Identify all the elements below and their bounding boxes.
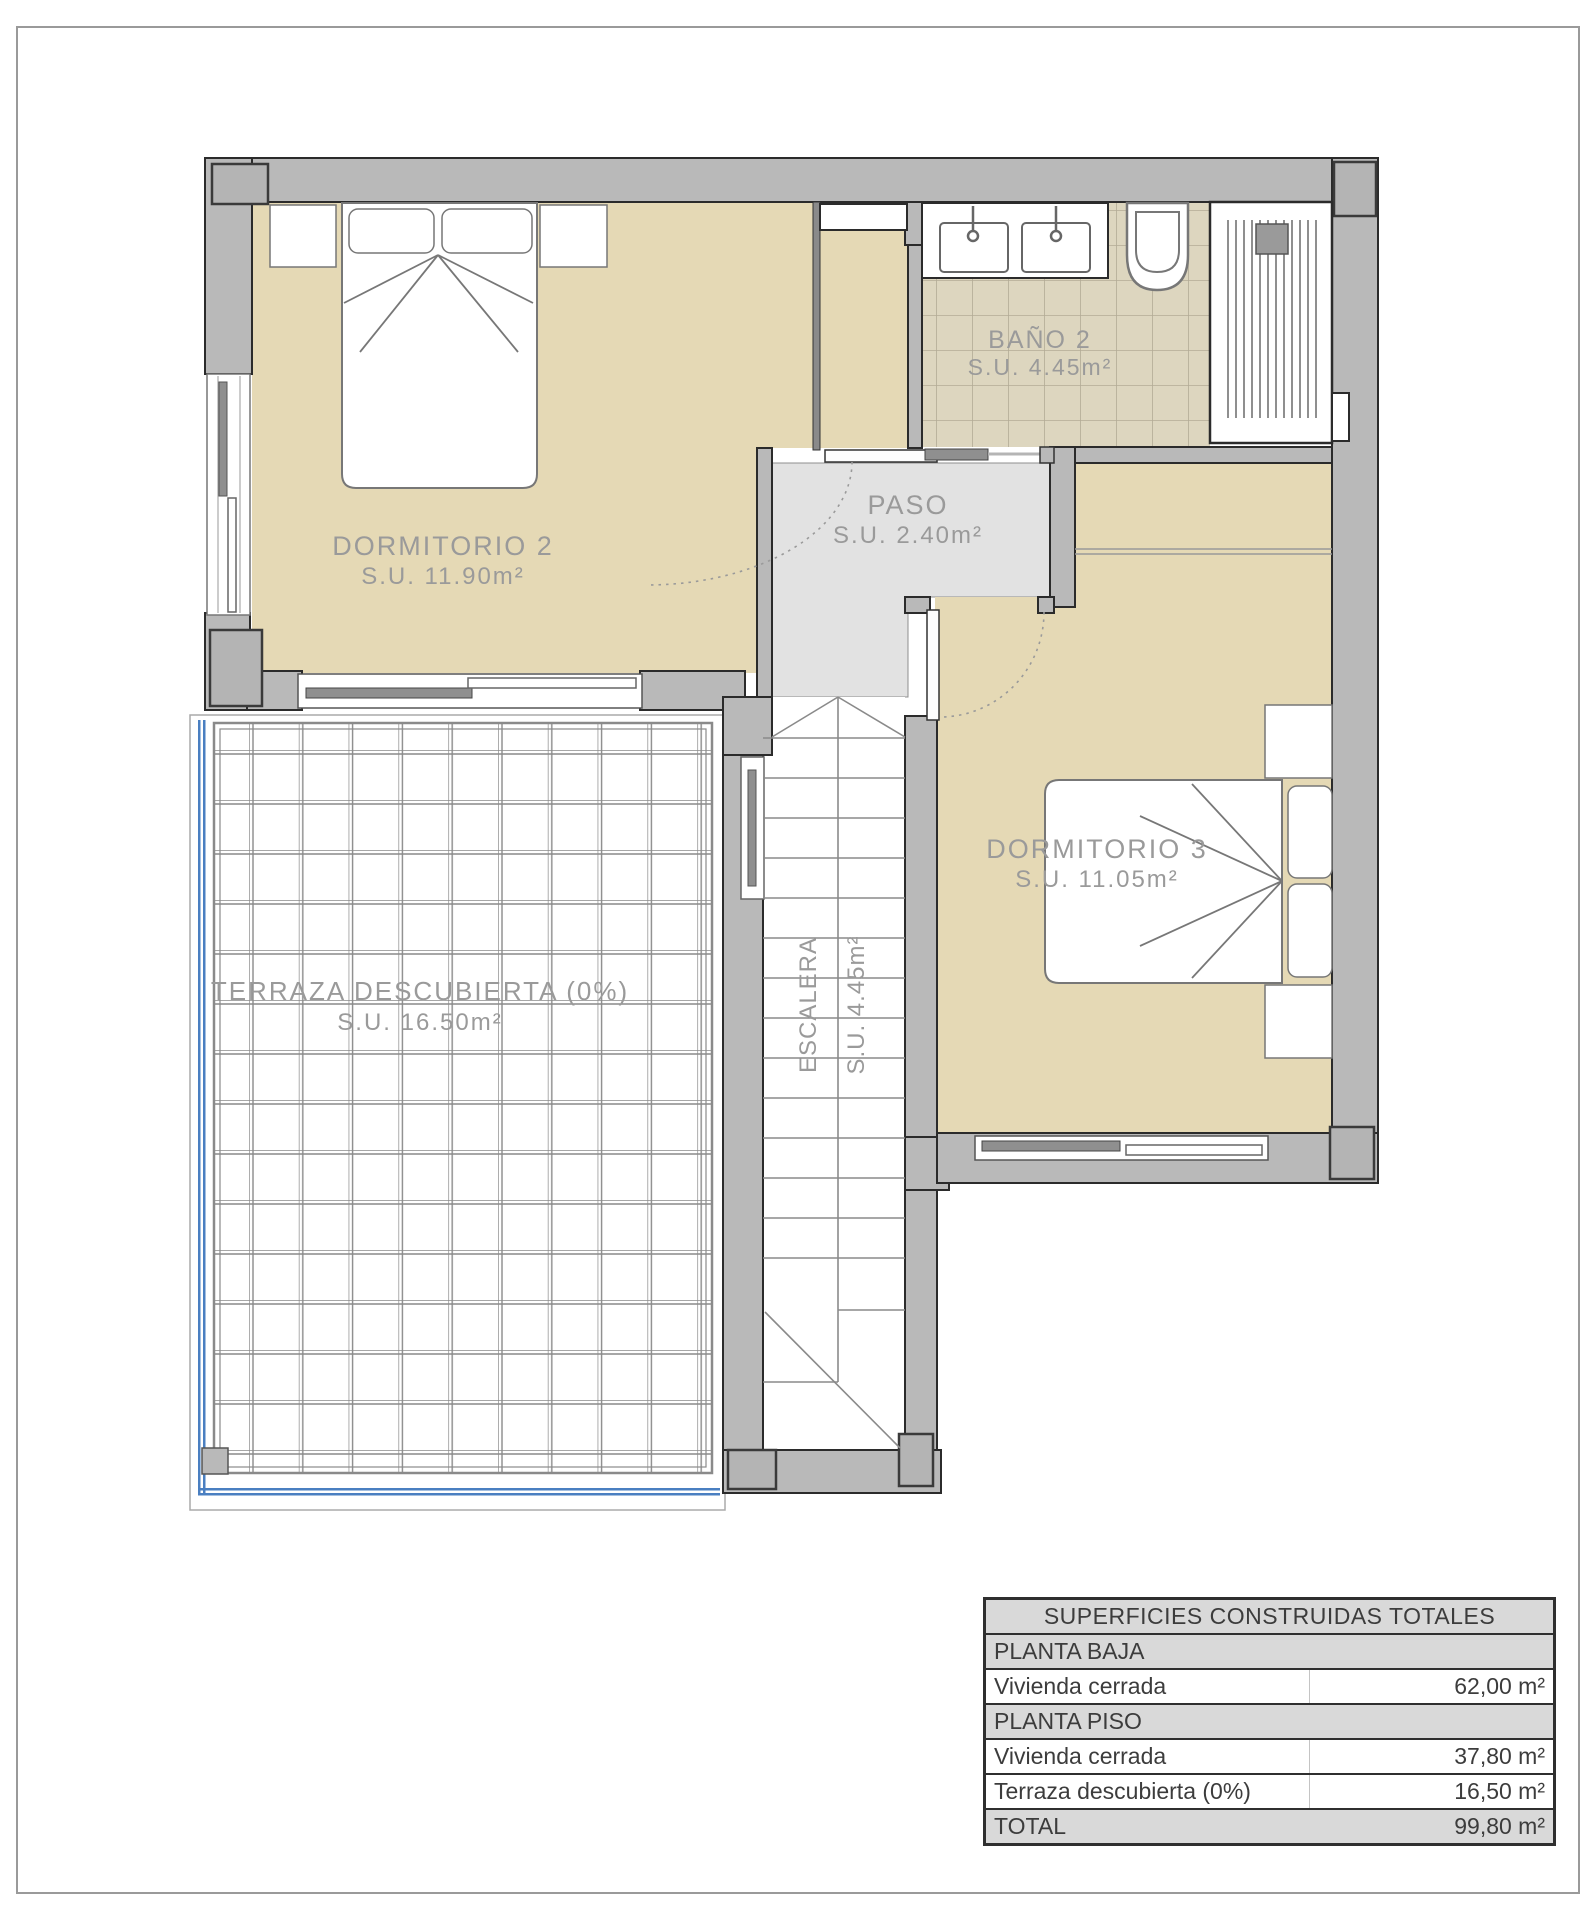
wall-right <box>1332 158 1378 1183</box>
terrace-water-line-left-inner <box>203 720 206 1495</box>
label-dormitorio3-name: DORMITORIO 3 <box>986 834 1208 864</box>
wall-stair-right <box>905 716 937 1450</box>
terrace-water-line-left-outer <box>198 720 201 1495</box>
label-dormitorio2-name: DORMITORIO 2 <box>332 531 554 561</box>
floor-plan-drawing: DORMITORIO 2 S.U. 11.90m² BAÑO 2 S.U. 4.… <box>0 0 1596 1560</box>
label-escalera-name: ESCALERA <box>795 937 822 1073</box>
nightstand <box>1265 705 1332 778</box>
shower-drain <box>1256 224 1288 254</box>
label-paso-name: PASO <box>867 490 948 520</box>
table-row: Terraza descubierta (0%) 16,50 m² <box>985 1774 1555 1809</box>
pillow <box>1288 884 1332 977</box>
terrace-water-line-bottom-outer <box>198 1488 720 1491</box>
pillar-top-right <box>1334 162 1376 216</box>
terrace <box>190 715 725 1510</box>
table-row-planta-baja: PLANTA BAJA <box>985 1634 1555 1669</box>
section-label: PLANTA BAJA <box>985 1634 1555 1669</box>
window-dorm2-terrace <box>298 674 642 708</box>
label-bano2-name: BAÑO 2 <box>988 325 1092 354</box>
nightstand <box>270 205 336 267</box>
terrace-tile-grid <box>214 723 712 1473</box>
wall-paso-left <box>757 448 772 700</box>
row-value: 37,80 m² <box>1309 1739 1554 1774</box>
terrace-water-line-bottom-inner <box>198 1493 720 1496</box>
wall-paso-right <box>1050 447 1075 607</box>
wall-stair-left-block <box>723 697 772 755</box>
label-dormitorio2-area: S.U. 11.90m² <box>361 563 525 590</box>
nightstand <box>1265 985 1332 1058</box>
pillar-left-mid <box>210 630 262 706</box>
wall-top <box>205 158 1378 202</box>
row-label: Terraza descubierta (0%) <box>985 1774 1310 1809</box>
floor-plan-document: { "plan": { "rooms": { "dormitorio2": {"… <box>0 0 1596 1920</box>
toilet <box>1127 203 1188 290</box>
label-paso-area: S.U. 2.40m² <box>833 522 983 549</box>
shower <box>1210 202 1332 443</box>
window-dorm3-bottom <box>975 1136 1268 1160</box>
door-bano2-sliding <box>925 447 1054 463</box>
summary-title: SUPERFICIES CONSTRUIDAS TOTALES <box>985 1599 1555 1635</box>
pillow <box>349 209 434 253</box>
row-value: 99,80 m² <box>1309 1809 1554 1845</box>
table-row-total: TOTAL 99,80 m² <box>985 1809 1555 1845</box>
dormitorio2-closet-floor <box>820 229 907 448</box>
row-label: TOTAL <box>985 1809 1310 1845</box>
summary-table: SUPERFICIES CONSTRUIDAS TOTALES PLANTA B… <box>983 1597 1556 1846</box>
label-escalera-area: S.U. 4.45m² <box>843 935 870 1074</box>
wall-closet-partition <box>813 202 820 450</box>
wall-paso-bottom-jamb <box>1038 597 1054 613</box>
pillar-stair-bottom-left <box>728 1450 776 1489</box>
shower-wall-notch <box>1332 393 1349 441</box>
pillar-top-left <box>212 164 268 204</box>
label-dormitorio3-area: S.U. 11.05m² <box>1015 866 1179 893</box>
pillar-bottom-right <box>1330 1127 1374 1179</box>
label-bano2-area: S.U. 4.45m² <box>968 354 1113 380</box>
label-terraza-name: TERRAZA DESCUBIERTA (0%) <box>211 976 629 1006</box>
pillow <box>442 209 532 253</box>
window-left-wall <box>207 374 250 615</box>
table-row: Vivienda cerrada 62,00 m² <box>985 1669 1555 1704</box>
row-value: 16,50 m² <box>1309 1774 1554 1809</box>
row-label: Vivienda cerrada <box>985 1669 1310 1704</box>
row-value: 62,00 m² <box>1309 1669 1554 1704</box>
summary-header-row: SUPERFICIES CONSTRUIDAS TOTALES <box>985 1599 1555 1635</box>
nightstand <box>540 205 607 267</box>
table-row: Vivienda cerrada 37,80 m² <box>985 1739 1555 1774</box>
table-row-planta-piso: PLANTA PISO <box>985 1704 1555 1739</box>
row-label: Vivienda cerrada <box>985 1739 1310 1774</box>
section-label: PLANTA PISO <box>985 1704 1555 1739</box>
pillow <box>1288 786 1332 878</box>
label-terraza-area: S.U. 16.50m² <box>337 1009 502 1036</box>
wall-dorm3-top <box>1053 447 1332 463</box>
terrace-corner-drain <box>202 1448 228 1474</box>
dorm2-closet-shelf <box>820 204 907 230</box>
pillar-stair-bottom-right <box>899 1434 933 1486</box>
stair-shaft-floor <box>763 697 905 1450</box>
window-stair-terrace <box>741 757 764 899</box>
